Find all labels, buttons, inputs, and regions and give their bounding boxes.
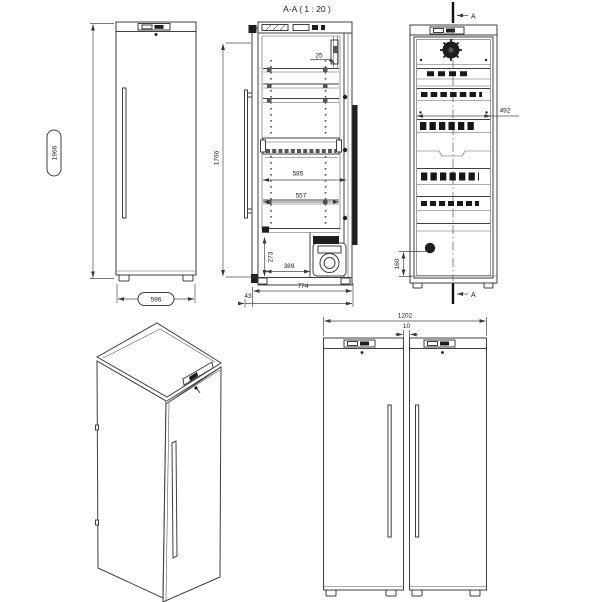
dim-label-10: 10 [403, 323, 411, 330]
dim-label-160: 160 [394, 258, 401, 269]
dim-1766: 1766 [213, 43, 256, 277]
foot [183, 275, 193, 281]
dim-label-389: 389 [284, 263, 295, 270]
internal-front-view: A A [394, 2, 519, 304]
door-handle [388, 405, 391, 537]
foot [484, 283, 493, 288]
dim-label-1766: 1766 [213, 150, 220, 165]
section-view-aa: A-A ( 1 : 20 ) [213, 4, 357, 308]
hinge [96, 425, 99, 430]
dim-label-557: 557 [296, 193, 307, 200]
isometric-view [96, 323, 222, 602]
door-handle [172, 441, 177, 558]
foot [119, 275, 129, 281]
lock-dot [361, 351, 364, 354]
dim-label-596: 596 [151, 297, 162, 304]
handle-section [245, 90, 248, 218]
section-title: A-A ( 1 : 20 ) [283, 4, 331, 14]
dim-43: 43 [238, 293, 352, 308]
dim-label-273: 273 [267, 251, 274, 262]
condenser [353, 105, 358, 245]
door-section [252, 28, 258, 280]
foot [413, 283, 422, 288]
hinge [96, 520, 99, 525]
front-view: 1966 596 [47, 22, 196, 306]
side-by-side-view: 1202 10 [324, 313, 487, 597]
dim-label-43: 43 [244, 293, 252, 300]
door-handle [416, 405, 419, 537]
drawing-canvas: 1966 596 A-A ( 1 : 20 ) [0, 0, 602, 602]
foot [386, 590, 396, 596]
dim-height: 1966 [47, 24, 114, 279]
section-cut-label-top: A [471, 14, 476, 21]
lock-dot [155, 33, 158, 36]
buttons [155, 25, 164, 29]
section-cut-label-bottom: A [471, 292, 476, 299]
foot [326, 590, 336, 596]
technical-drawing-sheet: 1966 596 A-A ( 1 : 20 ) [0, 0, 602, 602]
dim-width: 596 [117, 284, 195, 306]
foot [412, 590, 422, 596]
dim-label-1202: 1202 [398, 313, 413, 320]
lock-dot [441, 351, 444, 354]
left-cabinet [324, 338, 404, 596]
dim-label-25: 25 [315, 53, 323, 60]
door-top-hinge [249, 25, 257, 33]
drain-hole [425, 243, 435, 253]
door-handle [123, 88, 127, 218]
dim-label-585: 585 [293, 171, 304, 178]
dim-label-1966: 1966 [51, 145, 58, 160]
dim-label-492: 492 [500, 108, 511, 115]
foot [470, 590, 480, 596]
dim-label-774: 774 [298, 283, 309, 290]
right-cabinet [410, 338, 487, 596]
